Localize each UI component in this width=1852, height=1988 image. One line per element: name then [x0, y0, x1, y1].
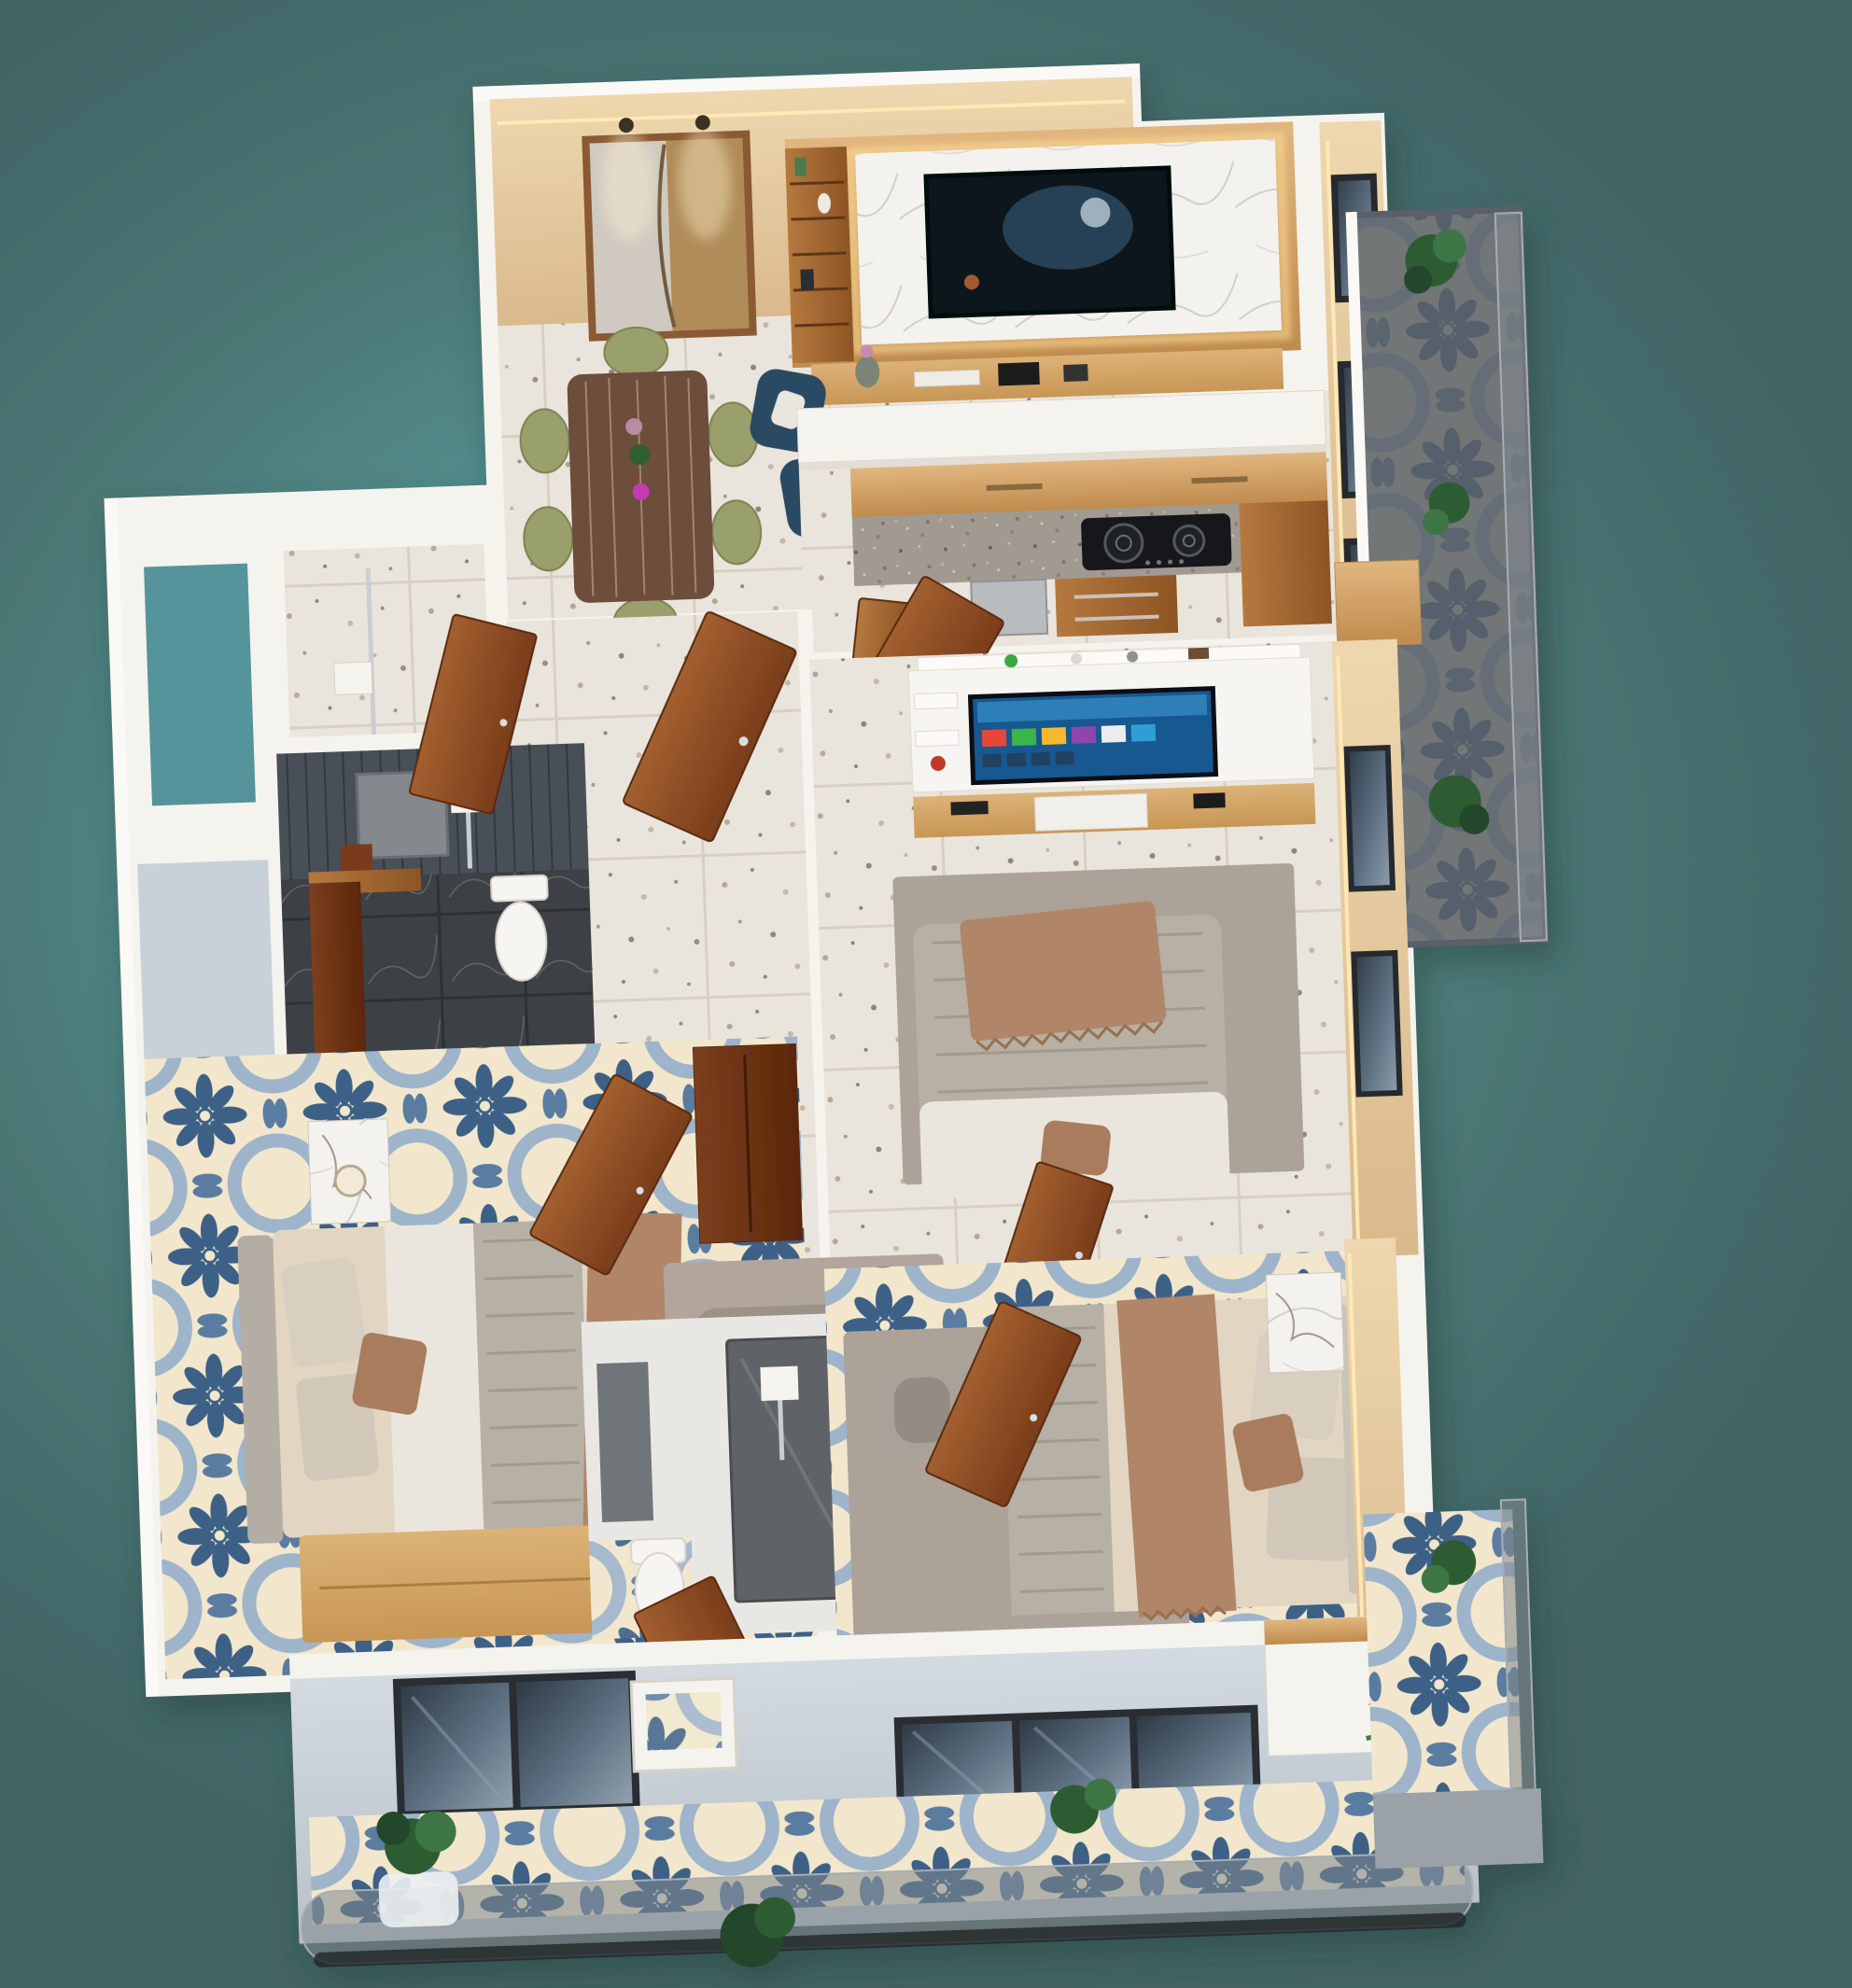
console-remote: [1063, 364, 1088, 382]
box-window: [631, 1678, 737, 1771]
master-bed: [912, 898, 1230, 1198]
wood-drawers: [1055, 575, 1178, 637]
table-lamp: [335, 1166, 366, 1197]
media-wall: [784, 121, 1302, 406]
nightstand-lamp: [1266, 1272, 1344, 1373]
sliding-window: [393, 1671, 640, 1819]
smart-tv-unit: [908, 644, 1315, 838]
shower-pipe: [468, 813, 470, 869]
wall-plate: [334, 662, 372, 694]
shelf-decor-green: [794, 157, 807, 175]
scene-background: [0, 0, 1852, 1988]
open-shaft: [144, 564, 256, 806]
apartment-plan: [91, 50, 1587, 1988]
right-lower-balcony: [1363, 1499, 1544, 1869]
shower-pipe: [780, 1400, 782, 1460]
tall-cabinet: [1239, 500, 1332, 626]
side-shelf: [916, 730, 960, 747]
nightstand-lamp: [308, 1119, 391, 1225]
shelf-decor-box: [1188, 648, 1209, 660]
gray-wall: [1373, 1788, 1544, 1869]
front-balcony: [289, 1614, 1481, 1983]
gas-hob: [1081, 513, 1232, 571]
wall-art: [582, 114, 757, 342]
white-planter: [378, 1871, 459, 1928]
master-window: [1354, 953, 1399, 1094]
brown-throw: [960, 901, 1167, 1042]
master-bedroom: [809, 639, 1421, 1341]
gray-quilt: [473, 1220, 591, 1532]
shower-shelf: [760, 1366, 798, 1401]
box-window-glass: [646, 1692, 723, 1751]
light-shaft: [137, 860, 274, 1065]
console-keyboard: [914, 370, 980, 386]
remotes: [950, 801, 988, 815]
side-shelf: [914, 693, 958, 709]
vanity-partition: [309, 882, 367, 1061]
console-box: [1193, 792, 1226, 808]
pantry-box: [1335, 560, 1422, 647]
marble-nightstand: [1266, 1272, 1344, 1373]
pillow: [280, 1256, 369, 1368]
counter-box: [341, 844, 373, 871]
shelf-decor-books: [800, 269, 814, 289]
console-drawer: [1034, 793, 1147, 831]
master-window: [1347, 748, 1393, 889]
toilet-tank: [491, 875, 548, 902]
floor-plan-render: [0, 0, 1852, 1988]
gray-vanity: [596, 1362, 653, 1522]
console-speaker: [998, 362, 1040, 386]
